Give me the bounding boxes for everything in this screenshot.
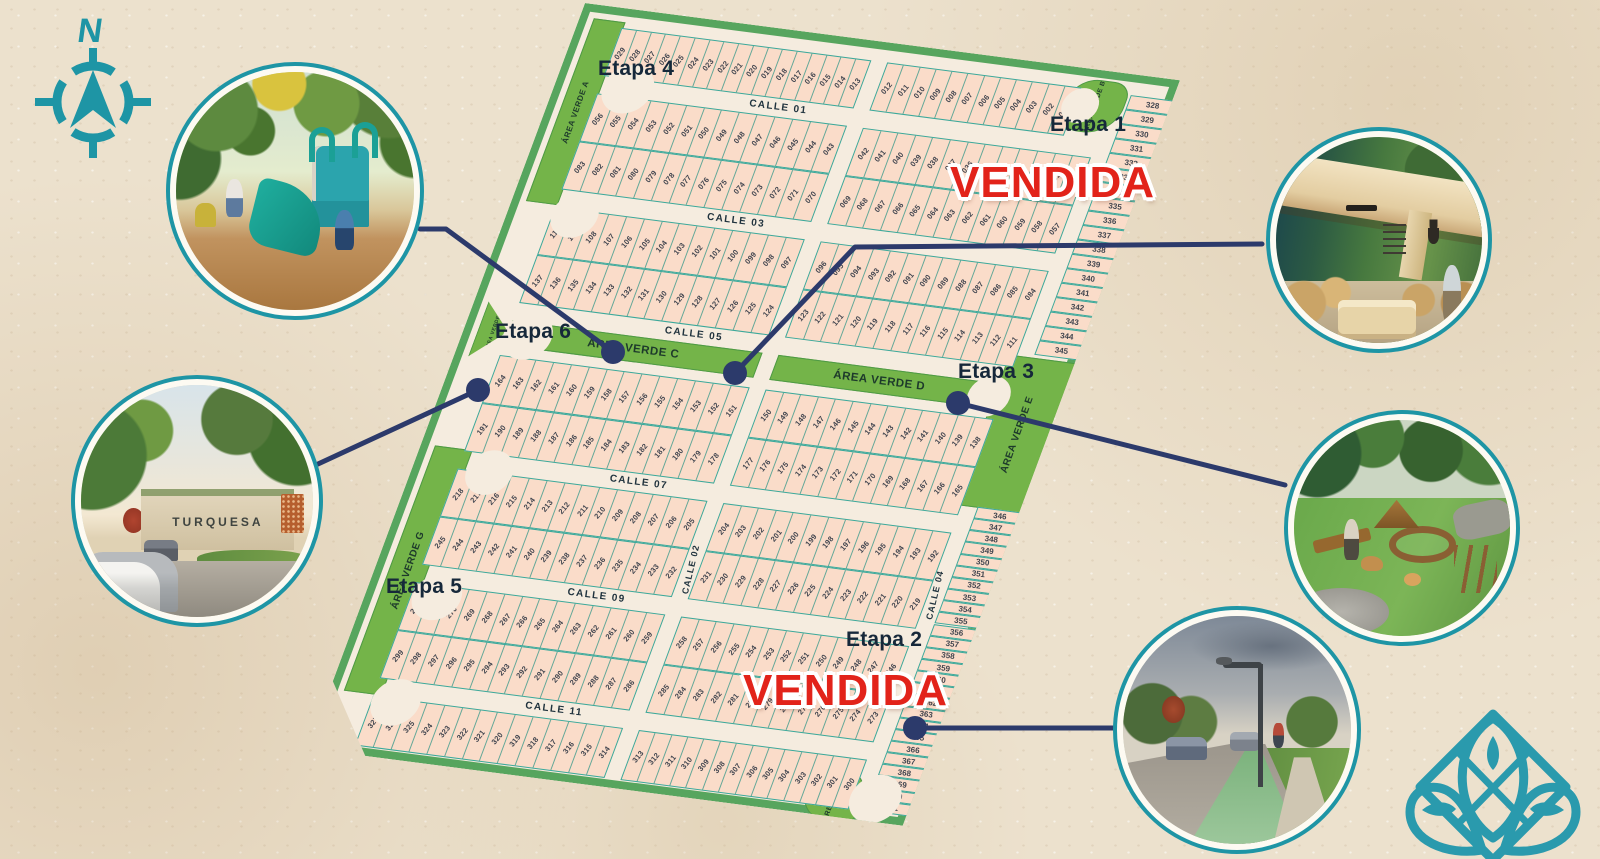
pedestrians bbox=[1273, 723, 1283, 748]
car bbox=[1230, 732, 1260, 750]
photo-entrance: TURQUESA bbox=[71, 375, 323, 627]
connector-restaurant bbox=[735, 244, 1262, 373]
person-figure bbox=[1344, 519, 1359, 560]
street-lamp-head bbox=[1216, 657, 1232, 665]
restaurant-render bbox=[1276, 137, 1482, 343]
toy bbox=[195, 203, 216, 227]
sold-banner-etapa-1: VENDIDA bbox=[950, 158, 1155, 208]
connector-entrance bbox=[318, 390, 478, 464]
adult-figure bbox=[226, 179, 243, 217]
play-arch bbox=[309, 127, 335, 163]
trees bbox=[1294, 420, 1510, 515]
compass-rose: N bbox=[18, 10, 168, 160]
label-etapa-1: Etapa 1 bbox=[1050, 113, 1126, 137]
hanging-lamp bbox=[1428, 228, 1438, 244]
label-etapa-3: Etapa 3 bbox=[958, 360, 1034, 384]
photo-dog-park bbox=[1284, 410, 1520, 646]
brand-ornament-icon bbox=[1396, 688, 1596, 859]
sofa bbox=[1338, 300, 1416, 339]
child-figure bbox=[335, 210, 354, 250]
label-etapa-6: Etapa 6 bbox=[495, 320, 571, 344]
entrance-render: TURQUESA bbox=[81, 385, 313, 617]
flowering-tree bbox=[1162, 696, 1185, 723]
dog-park-render bbox=[1294, 420, 1510, 636]
photo-playground bbox=[166, 62, 424, 320]
brand-ornament-plaque bbox=[281, 494, 304, 533]
compass-needle bbox=[70, 70, 116, 128]
agility-ring bbox=[1389, 526, 1456, 563]
cloud bbox=[1191, 621, 1351, 671]
label-etapa-4: Etapa 4 bbox=[598, 57, 674, 81]
shelves bbox=[1383, 224, 1406, 255]
map-pin-dot bbox=[601, 340, 625, 364]
street-lamp-pole bbox=[1258, 664, 1264, 787]
map-pin-dot bbox=[466, 378, 490, 402]
label-etapa-5: Etapa 5 bbox=[386, 575, 462, 599]
play-arch bbox=[352, 122, 378, 158]
person-figure bbox=[1443, 265, 1462, 323]
ceiling-fan bbox=[1346, 205, 1377, 211]
playground-render bbox=[176, 72, 414, 310]
weave-posts bbox=[1454, 545, 1497, 593]
photo-restaurant bbox=[1266, 127, 1492, 353]
dog bbox=[1361, 556, 1383, 571]
car bbox=[81, 552, 178, 612]
sold-banner-etapa-2: VENDIDA bbox=[743, 666, 948, 716]
connector-dog-park bbox=[958, 403, 1285, 485]
map-pin-dot bbox=[903, 716, 927, 740]
entrance-sign-text: TURQUESA bbox=[172, 511, 263, 529]
masterplan-flyer: ÁREA VERDE AÁREA VERDE BÁREA VERDE FÁREA… bbox=[0, 0, 1600, 859]
map-pin-dot bbox=[723, 361, 747, 385]
label-etapa-2: Etapa 2 bbox=[846, 628, 922, 652]
street-render bbox=[1123, 616, 1351, 844]
compass-north-letter: N bbox=[75, 12, 105, 50]
car bbox=[1166, 737, 1207, 760]
map-pin-dot bbox=[946, 391, 970, 415]
photo-street bbox=[1113, 606, 1361, 854]
